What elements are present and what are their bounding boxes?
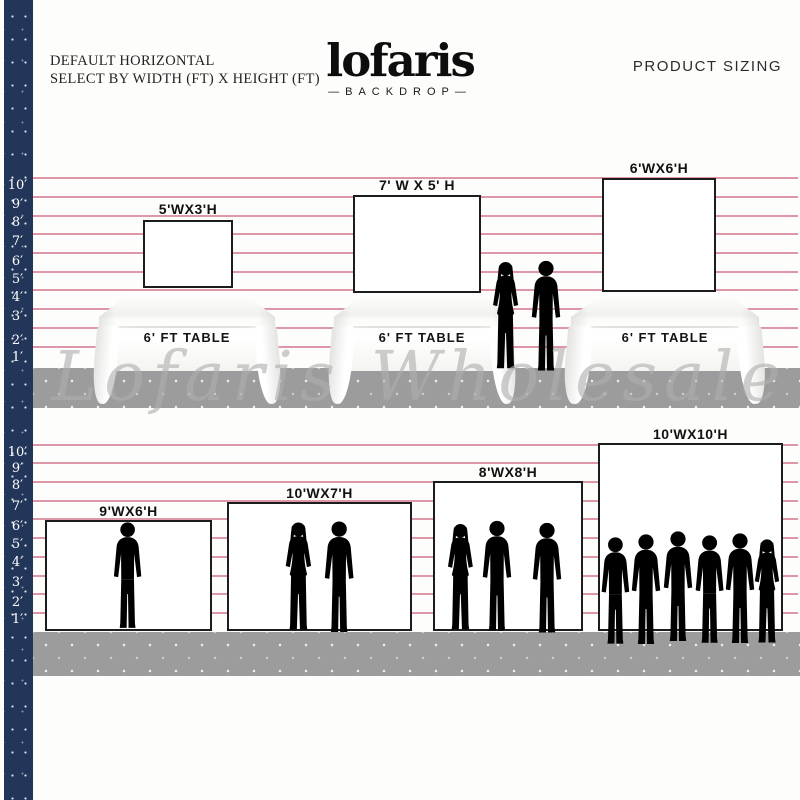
backdrop-label-10x7: 10'WX7'H bbox=[227, 485, 412, 501]
backdrop-label-8x8: 8'WX8'H bbox=[433, 464, 583, 480]
ruler-mark-7ft: 7′ bbox=[4, 500, 31, 514]
backdrop-6x6 bbox=[602, 178, 716, 292]
ruler-mark-9ft: 9′ bbox=[4, 462, 31, 476]
ruler-mark-4ft: 4′ bbox=[4, 556, 31, 570]
six-people-silhouette bbox=[596, 529, 782, 647]
page-title: PRODUCT SIZING bbox=[633, 58, 782, 75]
instruction-line-2: SELECT BY WIDTH (FT) X HEIGHT (FT) bbox=[50, 70, 320, 88]
backdrop-5x3 bbox=[143, 220, 233, 288]
backdrop-label-7x5: 7' W X 5' H bbox=[353, 177, 481, 193]
ruler-mark-2ft: 2′ bbox=[4, 334, 31, 348]
couple-silhouette bbox=[277, 517, 363, 634]
ruler-mark-5ft: 5′ bbox=[4, 273, 31, 287]
brand-logo: lofaris —BACKDROP— bbox=[310, 38, 490, 98]
couple-silhouette bbox=[486, 256, 568, 373]
size-instructions: DEFAULT HORIZONTAL SELECT BY WIDTH (FT) … bbox=[50, 52, 320, 88]
ruler-mark-7ft: 7′ bbox=[4, 235, 31, 249]
ruler-mark-2ft: 2′ bbox=[4, 596, 31, 610]
ruler-mark-9ft: 9′ bbox=[4, 198, 31, 212]
three-people-silhouette bbox=[441, 517, 571, 636]
ruler-mark-1ft: 1′ bbox=[4, 613, 31, 627]
ruler-mark-10ft: 10′ bbox=[4, 446, 31, 460]
table-3: 6' FT TABLE bbox=[570, 294, 760, 404]
product-sizing-chart: DEFAULT HORIZONTAL SELECT BY WIDTH (FT) … bbox=[0, 0, 800, 800]
ruler-mark-10ft: 10′ bbox=[4, 179, 31, 193]
ruler-mark-8ft: 8′ bbox=[4, 479, 31, 493]
table-label: 6' FT TABLE bbox=[333, 330, 511, 345]
ruler-mark-1ft: 1′ bbox=[4, 351, 31, 365]
table-2: 6' FT TABLE bbox=[333, 294, 511, 404]
backdrop-label-10x10: 10'WX10'H bbox=[598, 426, 783, 442]
backdrop-label-6x6: 6'WX6'H bbox=[602, 160, 716, 176]
ruler-mark-4ft: 4′ bbox=[4, 291, 31, 305]
table-edge bbox=[572, 326, 758, 328]
ruler-mark-5ft: 5′ bbox=[4, 538, 31, 552]
table-label: 6' FT TABLE bbox=[98, 330, 276, 345]
table-edge bbox=[100, 326, 274, 328]
backdrop-label-9x6: 9'WX6'H bbox=[45, 503, 212, 519]
ruler-mark-6ft: 6′ bbox=[4, 520, 31, 534]
table-1: 6' FT TABLE bbox=[98, 294, 276, 404]
ruler-mark-8ft: 8′ bbox=[4, 216, 31, 230]
ruler-mark-3ft: 3′ bbox=[4, 576, 31, 590]
backdrop-7x5 bbox=[353, 195, 481, 293]
single-man-silhouette bbox=[105, 521, 151, 633]
brand-logo-text: lofaris bbox=[310, 38, 490, 84]
brand-logo-tagline: —BACKDROP— bbox=[310, 86, 490, 98]
backdrop-label-5x3: 5'WX3'H bbox=[143, 201, 233, 217]
ruler-mark-3ft: 3′ bbox=[4, 310, 31, 324]
ruler-mark-6ft: 6′ bbox=[4, 255, 31, 269]
measuring-strip bbox=[4, 0, 33, 800]
table-edge bbox=[335, 326, 509, 328]
table-label: 6' FT TABLE bbox=[570, 330, 760, 345]
instruction-line-1: DEFAULT HORIZONTAL bbox=[50, 52, 320, 70]
